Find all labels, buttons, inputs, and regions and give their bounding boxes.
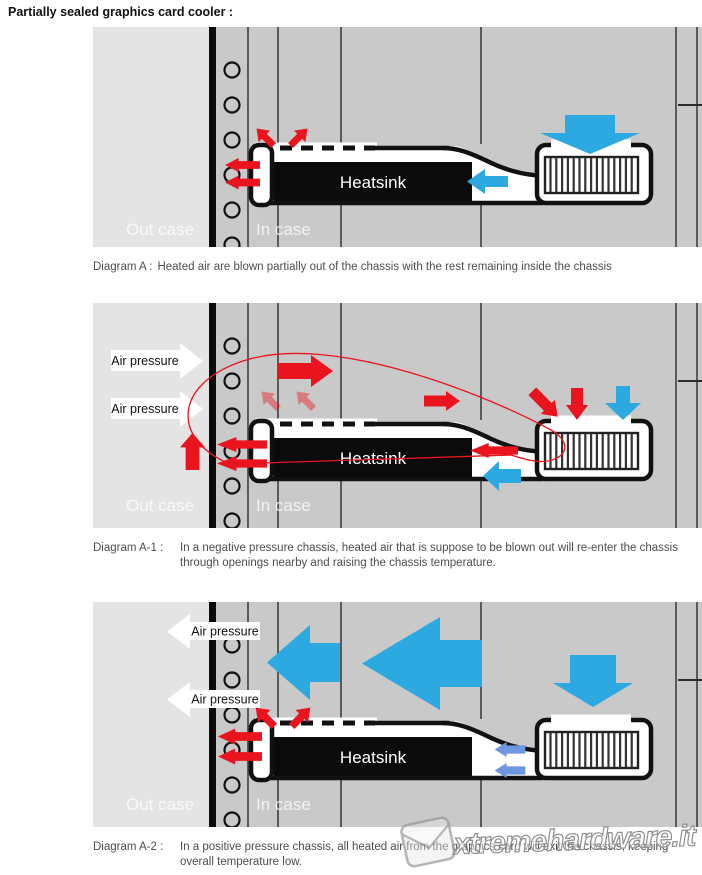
air-pressure-label: Air pressure: [111, 354, 178, 368]
diagram-a-canvas: Heatsink Out case In case: [93, 27, 702, 247]
page-title: Partially sealed graphics card cooler :: [0, 0, 702, 20]
graphics-card: [251, 415, 651, 481]
caption-a1-label: Diagram A-1 :: [93, 541, 180, 572]
air-pressure-label: Air pressure: [111, 402, 178, 416]
caption-diagram-a2: Diagram A-2 : In a positive pressure cha…: [93, 840, 702, 871]
caption-a1-text: In a negative pressure chassis, heated a…: [180, 541, 685, 572]
graphics-card: [251, 714, 651, 780]
out-case-label: Out case: [126, 795, 194, 814]
in-case-label: In case: [256, 220, 311, 239]
in-case-label: In case: [256, 795, 311, 814]
caption-diagram-a: Diagram A :Heated air are blown partiall…: [93, 260, 702, 276]
caption-a2-label: Diagram A-2 :: [93, 840, 180, 871]
in-case-label: In case: [256, 496, 311, 515]
diagram-a2-canvas: Heatsink Air pressure Air pressure Out c…: [93, 602, 702, 827]
heatsink-label: Heatsink: [340, 748, 407, 767]
air-pressure-label: Air pressure: [191, 624, 258, 638]
out-case-label: Out case: [126, 220, 194, 239]
caption-a2-text: In a positive pressure chassis, all heat…: [180, 840, 685, 871]
caption-a-label: Diagram A :: [93, 261, 152, 273]
diagram-a1-canvas: Heatsink Air pressure Air pressure Out c…: [93, 303, 702, 528]
caption-diagram-a1: Diagram A-1 : In a negative pressure cha…: [93, 541, 702, 572]
caption-a-text: Heated air are blown partially out of th…: [157, 261, 611, 273]
heatsink-label: Heatsink: [340, 173, 407, 192]
air-pressure-label: Air pressure: [191, 692, 258, 706]
out-case-label: Out case: [126, 496, 194, 515]
